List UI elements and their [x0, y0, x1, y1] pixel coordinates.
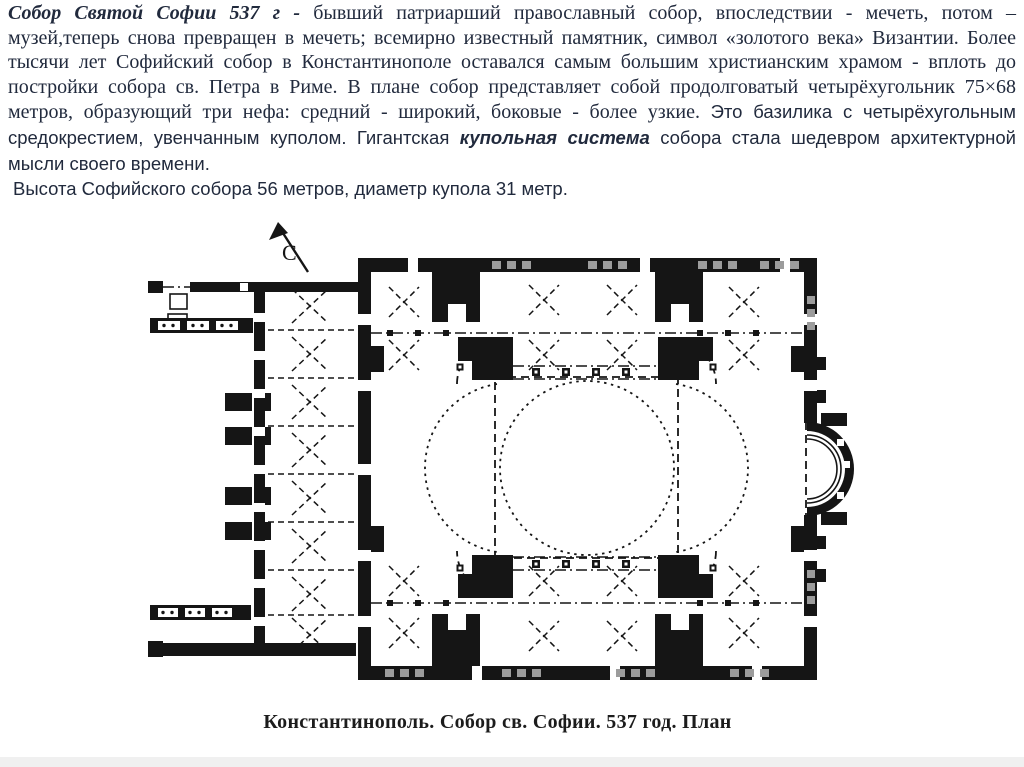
intro-paragraph: Собор Святой Софии 537 г - бывший патриа…: [8, 2, 1016, 201]
apse: [803, 413, 854, 525]
atrium-structures: [148, 281, 358, 657]
naos-walls: [358, 258, 826, 680]
central-dome-system: [425, 337, 748, 598]
north-label: С: [282, 240, 297, 265]
intro-dimensions-line: Высота Софийского собора 56 метров, диам…: [8, 177, 1016, 201]
west-semidome: [425, 384, 497, 552]
aisle-vaults: [371, 285, 804, 651]
east-semidome: [676, 384, 748, 552]
intro-main-text: Собор Святой Софии 537 г - бывший патриа…: [8, 2, 1016, 177]
intro-emphasis-text: купольная система: [460, 127, 650, 148]
slide: { "slide": { "intro": { "lead": "Собор С…: [0, 0, 1024, 767]
plan-caption: Константинополь. Собор св. Софии. 537 го…: [140, 711, 855, 734]
narthex: [254, 282, 356, 655]
north-arrow-icon: С: [269, 222, 308, 272]
floor-plan-figure: С: [140, 218, 855, 688]
intro-lead-text: Собор Святой Софии 537 г -: [8, 2, 313, 24]
central-dome: [500, 381, 674, 555]
footer-bar: [0, 757, 1024, 767]
